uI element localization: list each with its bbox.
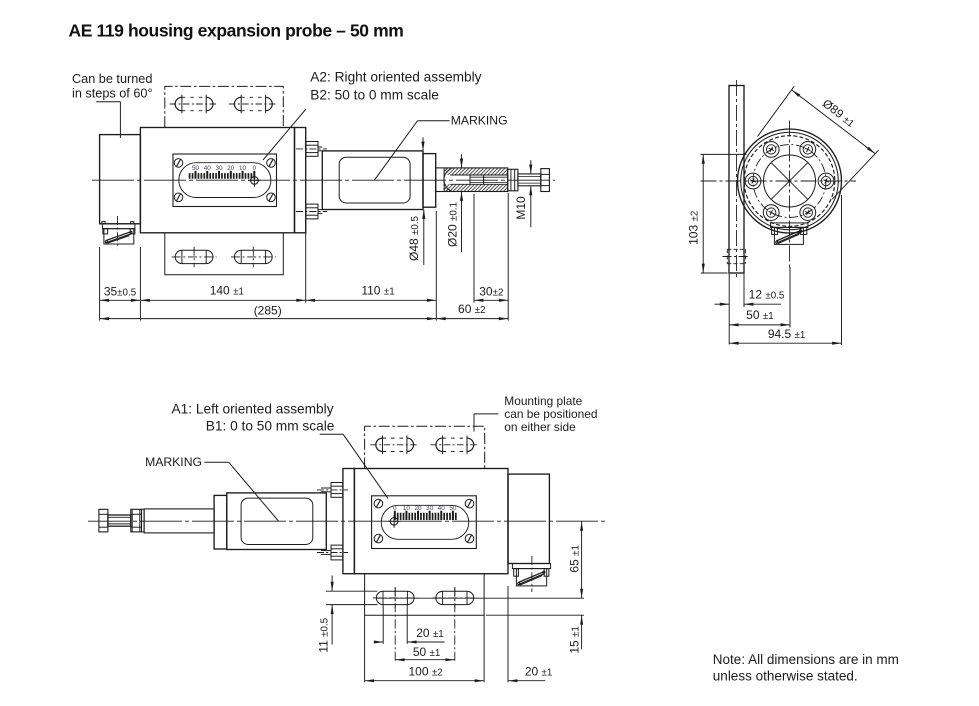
svg-text:65 ±1: 65 ±1 <box>567 545 581 573</box>
svg-text:in steps of 60°: in steps of 60° <box>72 86 153 100</box>
svg-text:40: 40 <box>204 165 212 172</box>
svg-text:50: 50 <box>192 165 200 172</box>
svg-text:(285): (285) <box>254 304 282 318</box>
svg-text:Mounting plate: Mounting plate <box>504 394 582 408</box>
svg-text:50: 50 <box>449 505 457 512</box>
svg-text:Note: All dimensions are in mm: Note: All dimensions are in mm <box>713 652 899 667</box>
svg-text:140 ±1: 140 ±1 <box>210 283 244 297</box>
svg-text:20: 20 <box>227 165 235 172</box>
svg-text:94.5 ±1: 94.5 ±1 <box>768 327 806 341</box>
svg-text:B2: 50 to 0 mm scale: B2: 50 to 0 mm scale <box>310 87 439 102</box>
svg-text:A2: Right oriented assembly: A2: Right oriented assembly <box>310 70 481 85</box>
svg-text:50 ±1: 50 ±1 <box>746 308 774 322</box>
svg-text:MARKING: MARKING <box>451 114 508 128</box>
svg-text:30: 30 <box>215 165 223 172</box>
svg-text:50 ±1: 50 ±1 <box>413 645 441 659</box>
svg-text:20: 20 <box>414 505 422 512</box>
svg-text:100 ±2: 100 ±2 <box>409 665 443 679</box>
svg-text:B1: 0 to 50 mm scale: B1: 0 to 50 mm scale <box>206 418 335 433</box>
svg-text:20 ±1: 20 ±1 <box>525 665 553 679</box>
svg-text:can be positioned: can be positioned <box>504 407 597 421</box>
svg-text:12 ±0.5: 12 ±0.5 <box>749 288 785 302</box>
svg-text:AE 119 housing expansion probe: AE 119 housing expansion probe – 50 mm <box>69 21 404 41</box>
svg-text:11 ±0.5: 11 ±0.5 <box>316 617 330 652</box>
svg-text:30: 30 <box>426 505 434 512</box>
svg-text:40: 40 <box>438 505 446 512</box>
svg-text:MARKING: MARKING <box>145 455 202 469</box>
svg-text:30±2: 30±2 <box>479 284 503 298</box>
svg-text:unless otherwise stated.: unless otherwise stated. <box>713 669 858 684</box>
svg-text:20 ±1: 20 ±1 <box>416 626 444 640</box>
svg-text:60 ±2: 60 ±2 <box>458 302 486 316</box>
svg-text:35±0.5: 35±0.5 <box>104 284 137 298</box>
svg-text:10: 10 <box>239 165 247 172</box>
svg-text:10: 10 <box>403 505 411 512</box>
svg-text:on either side: on either side <box>504 420 576 434</box>
svg-text:Ø48 ±0.5: Ø48 ±0.5 <box>407 215 421 261</box>
svg-text:0: 0 <box>393 505 397 512</box>
svg-text:Can be turned: Can be turned <box>72 72 152 86</box>
svg-text:M10: M10 <box>514 196 528 220</box>
svg-text:A1: Left oriented assembly: A1: Left oriented assembly <box>172 401 334 416</box>
svg-text:15 ±1: 15 ±1 <box>567 626 581 654</box>
svg-text:110 ±1: 110 ±1 <box>361 283 394 297</box>
svg-text:0: 0 <box>253 165 257 172</box>
svg-text:103 ±2: 103 ±2 <box>687 211 701 245</box>
svg-text:Ø20 ±0.1: Ø20 ±0.1 <box>445 202 459 247</box>
